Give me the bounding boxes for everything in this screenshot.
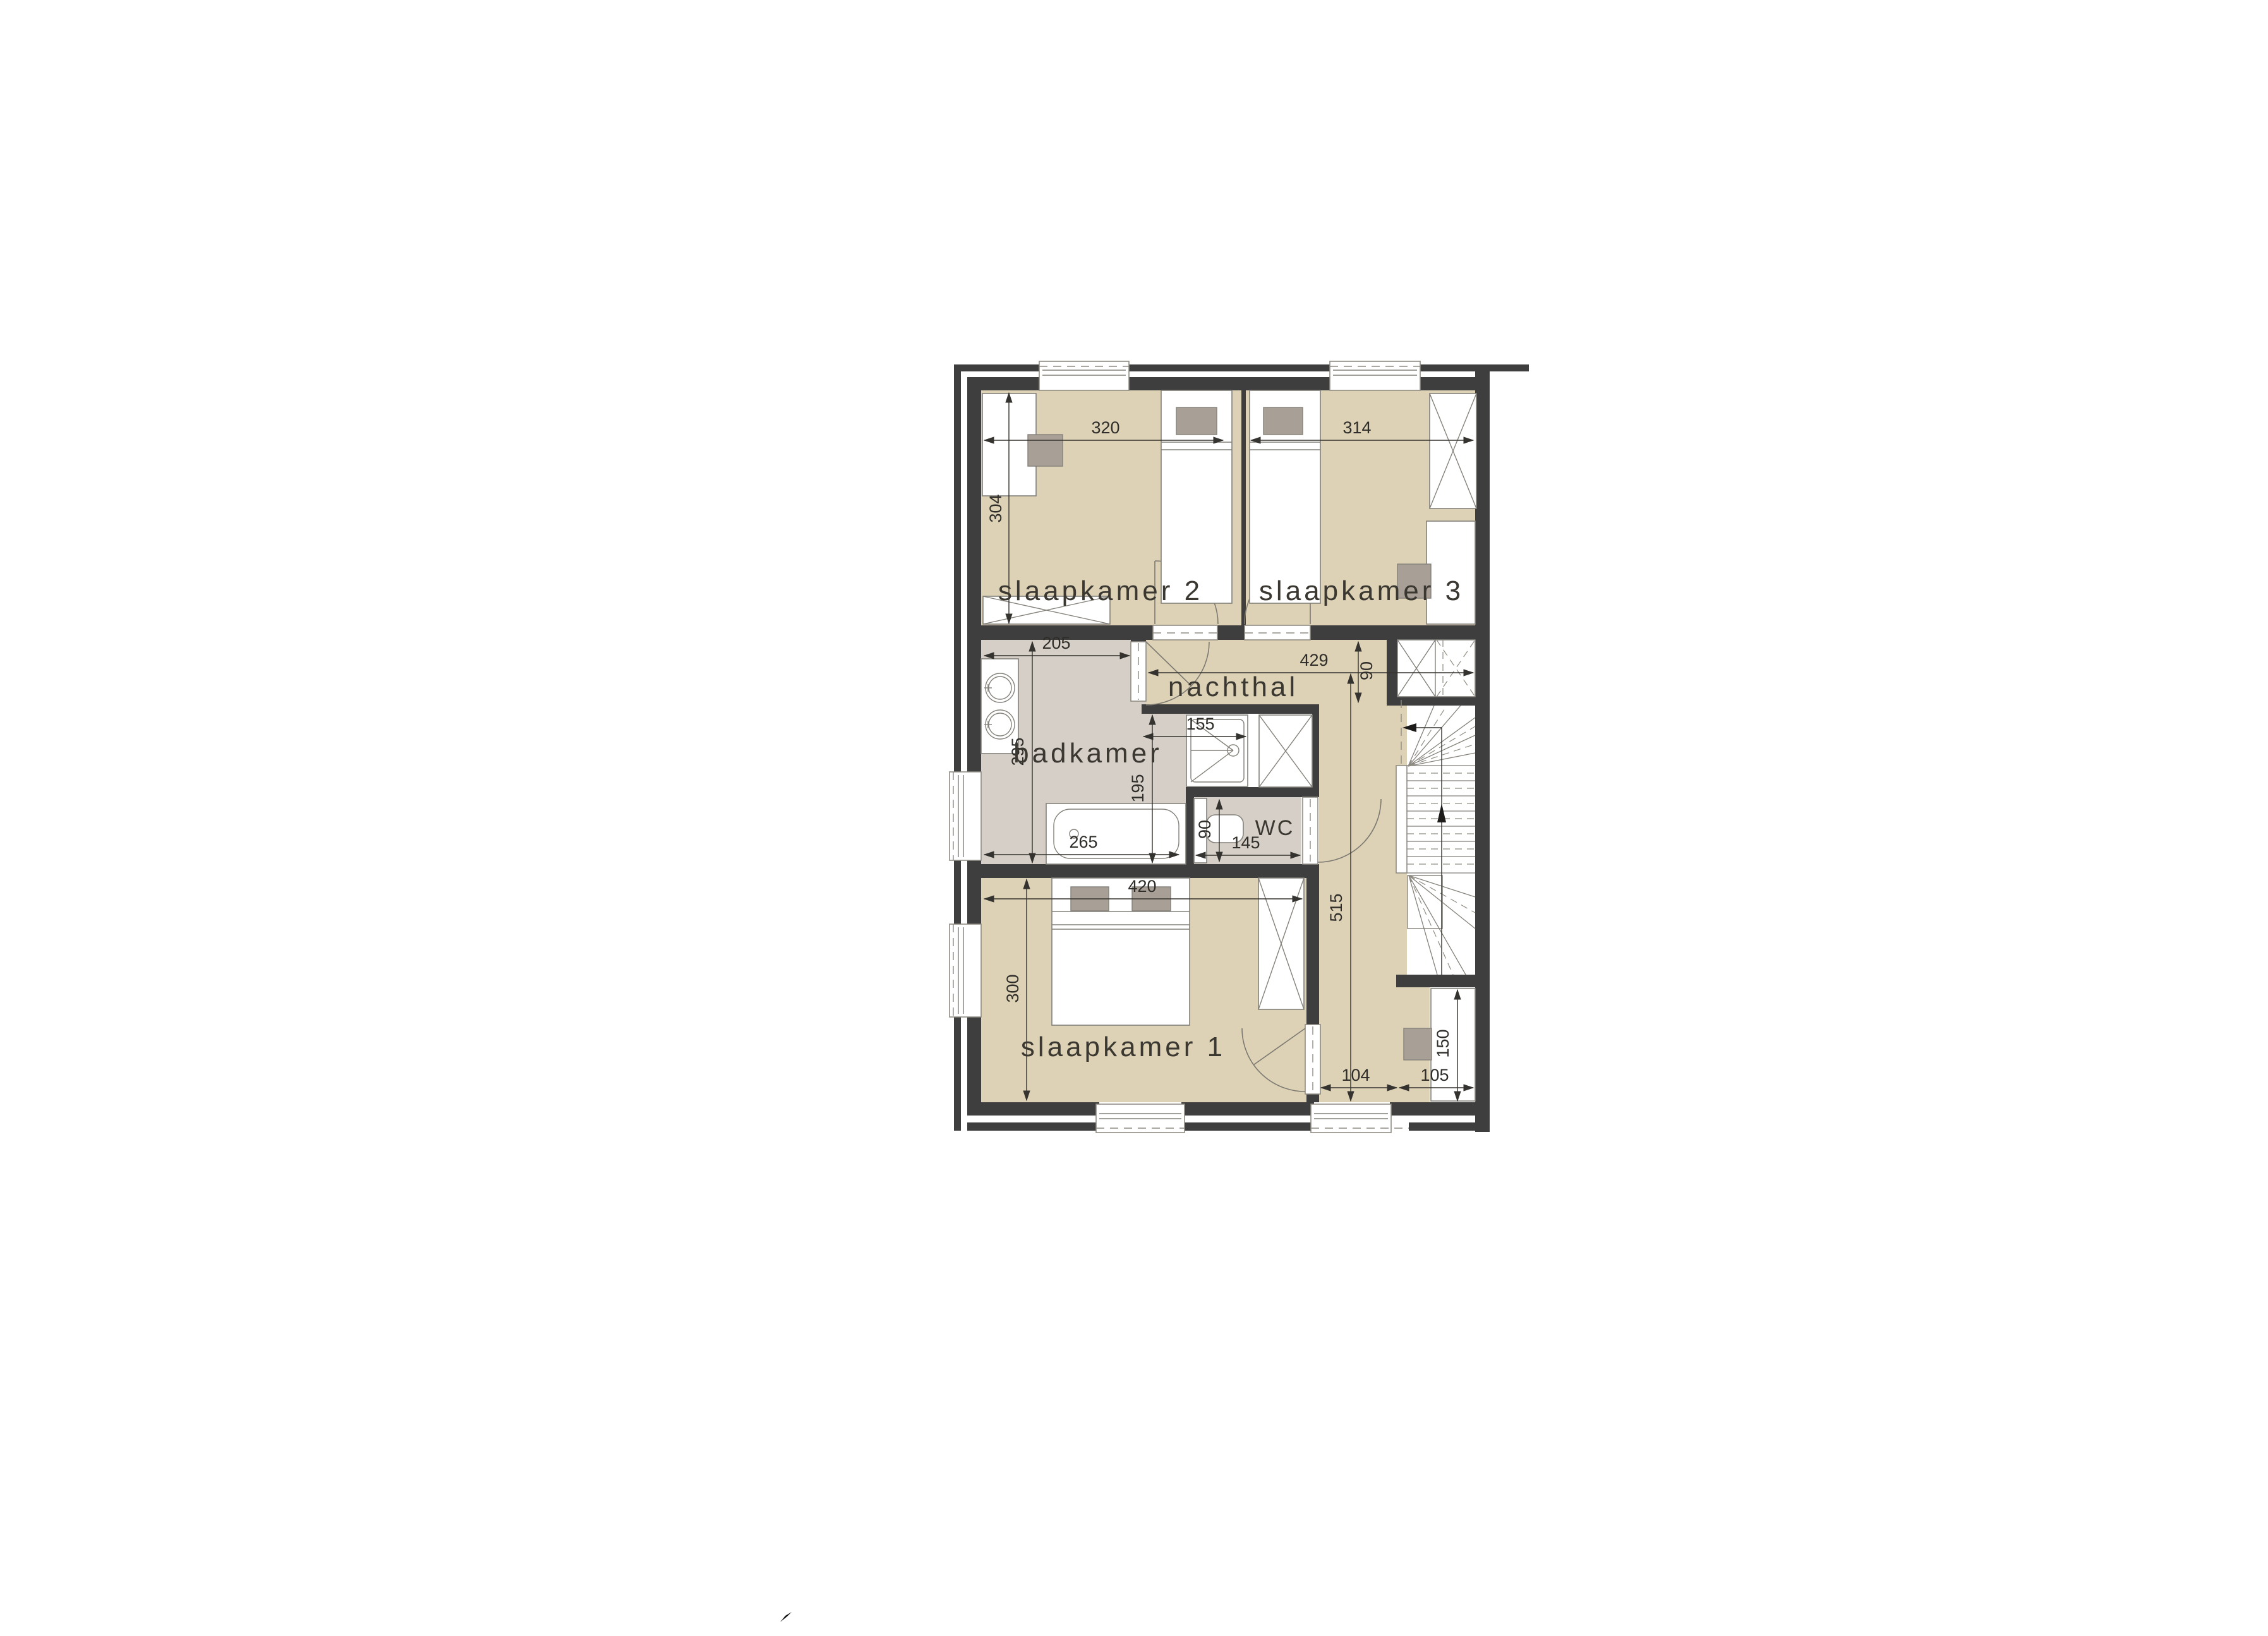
closet-linen	[1259, 715, 1312, 787]
wall-left-1	[967, 377, 981, 775]
label-hall: nachthal	[1168, 671, 1298, 702]
pillow	[1176, 407, 1217, 435]
label-wc: WC	[1255, 816, 1295, 840]
outer-band-bottom-left	[967, 1122, 1096, 1131]
dim-bedroom1-depth: 300	[1003, 974, 1022, 1002]
wall-bottom-2	[1181, 1102, 1314, 1116]
wall-hall-south	[1142, 704, 1319, 714]
outer-band-top-right	[1420, 364, 1529, 371]
bed-bedroom2	[1161, 390, 1232, 603]
wall-hall-north-2	[1217, 625, 1245, 640]
dim-hall-depth: 90	[1357, 661, 1376, 680]
outer-band-left-mid	[954, 860, 961, 924]
floorplan-canvas: 320 314 304 205 429 90 155 295 195 265 9…	[0, 0, 2268, 1636]
wall-right	[1475, 371, 1490, 1132]
window-bedroom1-west	[950, 924, 981, 1017]
wall-bottom-3	[1390, 1102, 1490, 1116]
wardrobe-bedroom1	[1258, 878, 1304, 1009]
outer-band-top-mid	[1129, 364, 1330, 371]
dim-landing-length: 515	[1327, 893, 1346, 922]
wall-stairwell-bottom	[1396, 975, 1475, 987]
outer-band-left-upper	[954, 364, 961, 772]
label-bedroom3: slaapkamer 3	[1259, 575, 1464, 606]
wall-bathroom-south	[981, 864, 1319, 878]
wall-bottom-1	[967, 1102, 1099, 1116]
window-bedroom3	[1330, 361, 1420, 390]
wardrobe-bedroom3	[1430, 394, 1476, 508]
dim-desk-length: 150	[1433, 1029, 1452, 1057]
dim-shower-width: 155	[1186, 714, 1214, 733]
chair	[1404, 1028, 1432, 1060]
dim-landing-width: 104	[1341, 1066, 1370, 1085]
bed-bedroom1	[1052, 878, 1190, 1025]
wall-bedroom1-east-lower	[1306, 1094, 1319, 1102]
label-bedroom1: slaapkamer 1	[1021, 1032, 1226, 1062]
wall-bedroom2-bedroom3	[1241, 390, 1246, 625]
outer-band-left-lower	[954, 1017, 961, 1131]
pillow	[1264, 407, 1303, 435]
outer-band-bottom-mid	[1185, 1122, 1311, 1131]
dim-bedroom1-width: 420	[1128, 877, 1156, 896]
dim-desk-zone-width: 105	[1420, 1066, 1449, 1085]
dim-bedroom2-width: 320	[1091, 418, 1119, 437]
wall-shower-south	[1186, 787, 1319, 797]
wall-hall-north-3	[1310, 625, 1475, 640]
dim-wc-depth: 90	[1195, 820, 1214, 839]
stairs-handrail	[1396, 766, 1407, 873]
dim-hall-width: 429	[1300, 651, 1328, 670]
window-bedroom1-south	[1096, 1104, 1185, 1133]
stray-mark	[780, 1612, 792, 1622]
dim-bedroom2-depth: 304	[986, 494, 1005, 522]
window-bathroom	[950, 772, 981, 860]
window-bedroom2	[1039, 361, 1129, 390]
dim-bedroom3-width: 314	[1342, 418, 1371, 437]
dim-bath-length: 265	[1069, 833, 1097, 851]
label-bedroom2: slaapkamer 2	[998, 575, 1203, 606]
chair	[1028, 435, 1063, 466]
floorplan-drawing: 320 314 304 205 429 90 155 295 195 265 9…	[0, 0, 2268, 1636]
dim-bathzone-depth: 195	[1128, 774, 1147, 802]
wall-top-2	[1126, 377, 1333, 390]
bed-bedroom3	[1250, 390, 1320, 603]
dim-bathroom-width: 205	[1042, 634, 1070, 653]
wall-left-2	[967, 857, 981, 927]
outer-band-top-left	[954, 364, 1039, 371]
wall-bedroom1-east-upper	[1306, 878, 1319, 1025]
label-bathroom: badkamer	[1013, 738, 1162, 769]
closet-hall-top	[1397, 640, 1475, 697]
wall-closet-right	[1312, 704, 1319, 787]
room-hall-floor-mid	[1319, 704, 1407, 987]
wall-stairwell-top	[1387, 697, 1475, 706]
wall-wc-west	[1186, 797, 1194, 864]
wall-left-3	[967, 1014, 981, 1116]
